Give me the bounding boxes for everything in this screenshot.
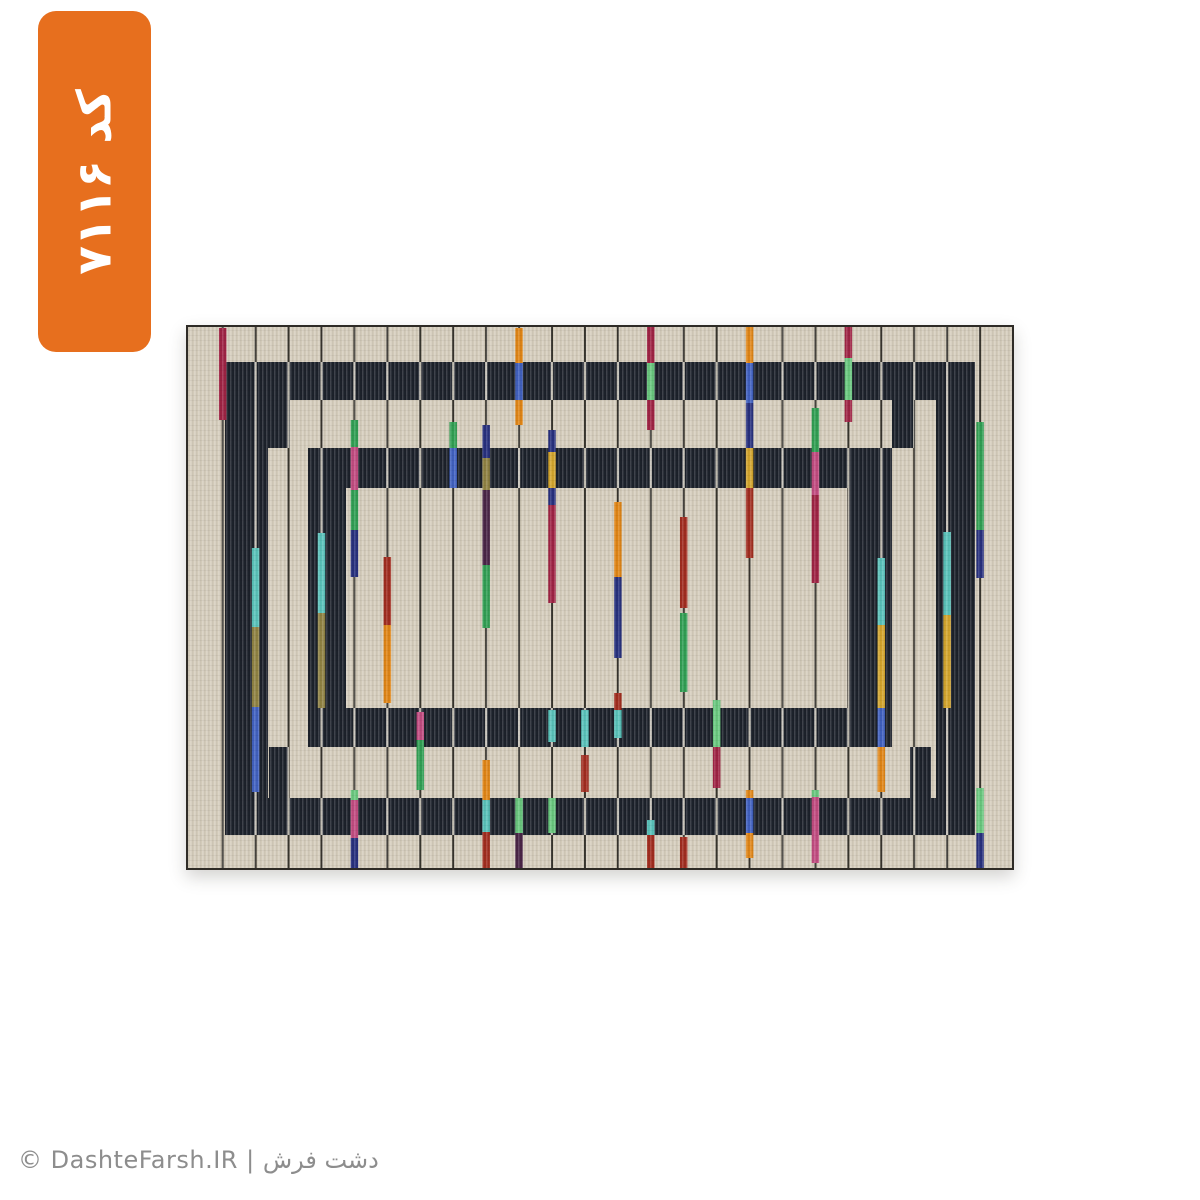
product-image-page: کد ۷۱۱۶ © DashteFarsh.IR | دشت فرش <box>0 0 1200 1200</box>
rug-artwork <box>186 325 1014 870</box>
watermark-credit: © DashteFarsh.IR | دشت فرش <box>18 1146 379 1174</box>
product-code-label: کد ۷۱۱۶ <box>67 89 122 275</box>
rug-product-image <box>186 325 1014 870</box>
product-code-badge: کد ۷۱۱۶ <box>38 11 151 352</box>
